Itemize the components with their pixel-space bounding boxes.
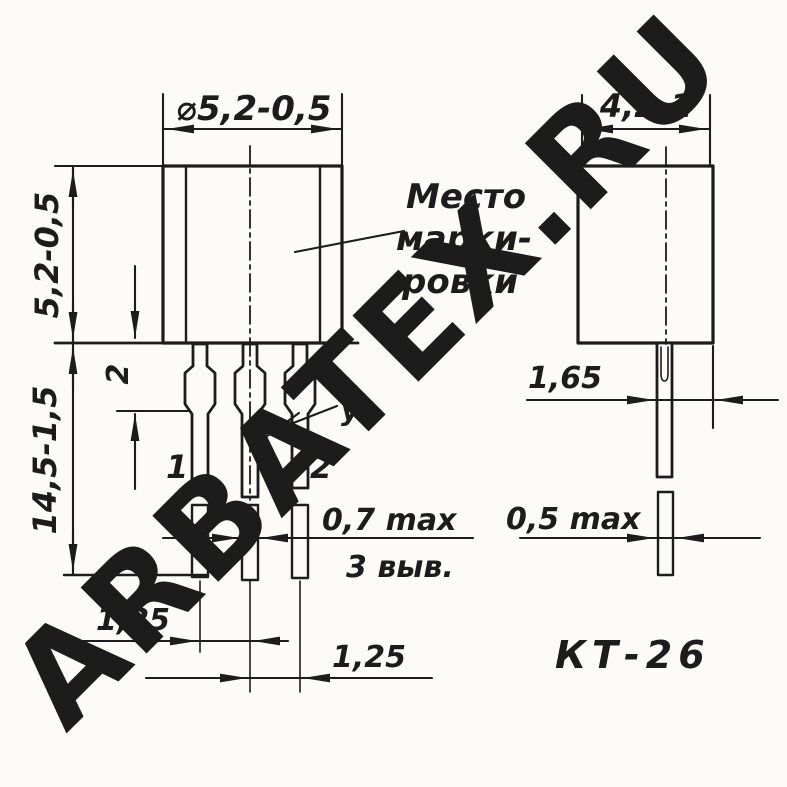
dim-flat-thickness-label: 0,5 max [506, 502, 642, 537]
dim-flat-width-label: 0,7 max [322, 503, 458, 538]
dim-body-height-label: 5,2-0,5 [28, 192, 66, 319]
front-body-outline [55, 166, 358, 343]
dim-total-length-label: 14,5-1,5 [26, 386, 64, 535]
dim-collar-length-label: 2 [101, 364, 136, 385]
dim-flat-thickness: 0,5 max [506, 492, 760, 575]
side-lead [657, 343, 672, 477]
dim-body-height: 5,2-0,5 [28, 167, 73, 342]
leads-count-note: 3 выв. [346, 550, 454, 585]
dim-diameter: ⌀5,2-0,5 [163, 89, 342, 166]
package-type-label: КТ-26 [555, 633, 711, 677]
dimension-drawing-svg: ⌀5,2-0,5 5,2-0,5 14,5-1,5 2 Место [0, 0, 787, 787]
dim-lead-offset: 1,65 [527, 346, 778, 428]
dim-pitch-right-label: 1,25 [332, 640, 406, 675]
package-outline-drawing: ⌀5,2-0,5 5,2-0,5 14,5-1,5 2 Место [0, 0, 787, 787]
dim-lead-offset-label: 1,65 [528, 361, 602, 396]
dim-diameter-label: ⌀5,2-0,5 [176, 89, 331, 129]
